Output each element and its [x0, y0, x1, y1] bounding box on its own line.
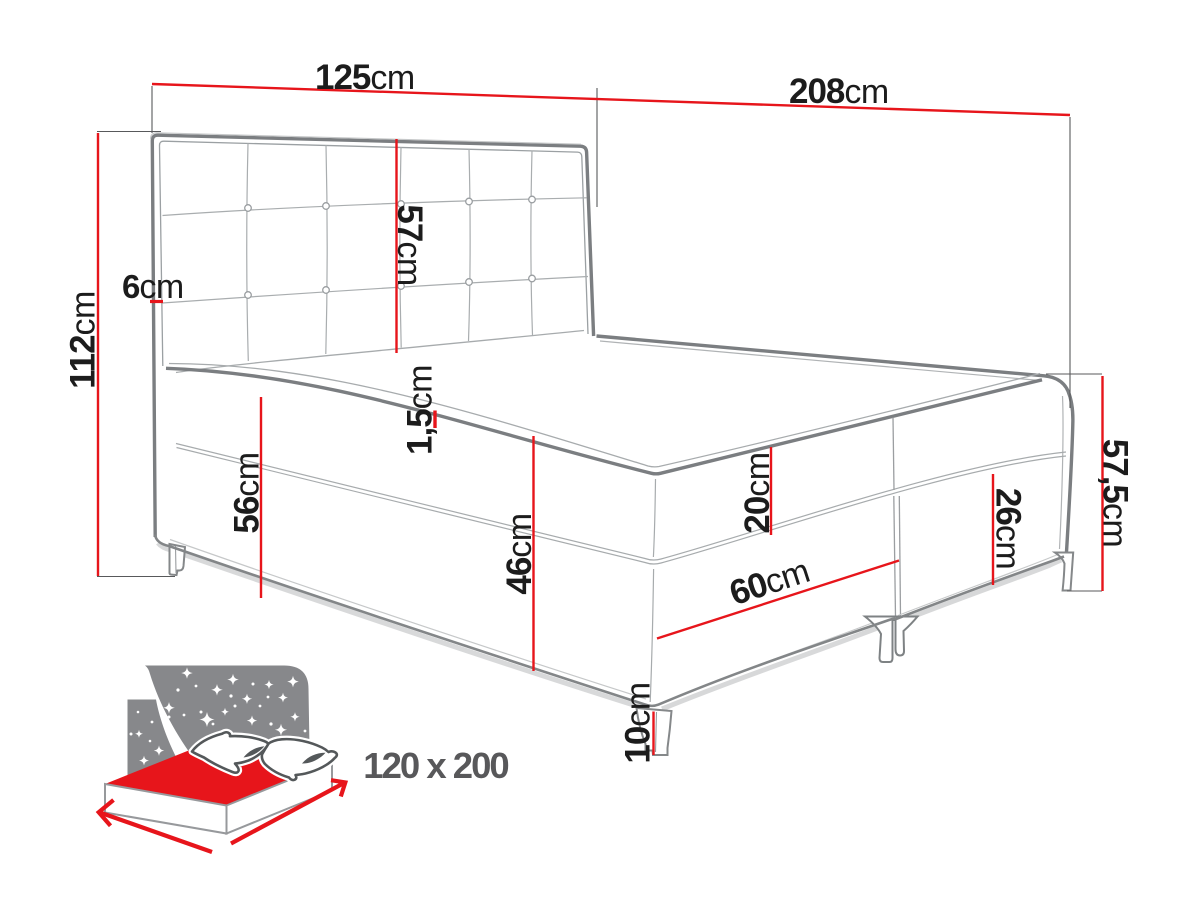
- svg-text:112cm: 112cm: [64, 291, 103, 389]
- svg-text:57,5cm: 57,5cm: [1096, 439, 1135, 547]
- svg-text:20cm: 20cm: [738, 452, 777, 533]
- svg-text:1,5cm: 1,5cm: [401, 365, 440, 455]
- svg-text:125cm: 125cm: [315, 58, 415, 97]
- svg-text:120 x 200: 120 x 200: [363, 745, 508, 786]
- svg-text:208cm: 208cm: [789, 72, 889, 111]
- svg-text:26cm: 26cm: [989, 488, 1028, 569]
- svg-text:57cm: 57cm: [390, 204, 429, 285]
- svg-text:56cm: 56cm: [228, 452, 267, 533]
- svg-text:10cm: 10cm: [619, 682, 658, 763]
- svg-text:46cm: 46cm: [500, 513, 539, 594]
- svg-text:6cm: 6cm: [122, 268, 184, 306]
